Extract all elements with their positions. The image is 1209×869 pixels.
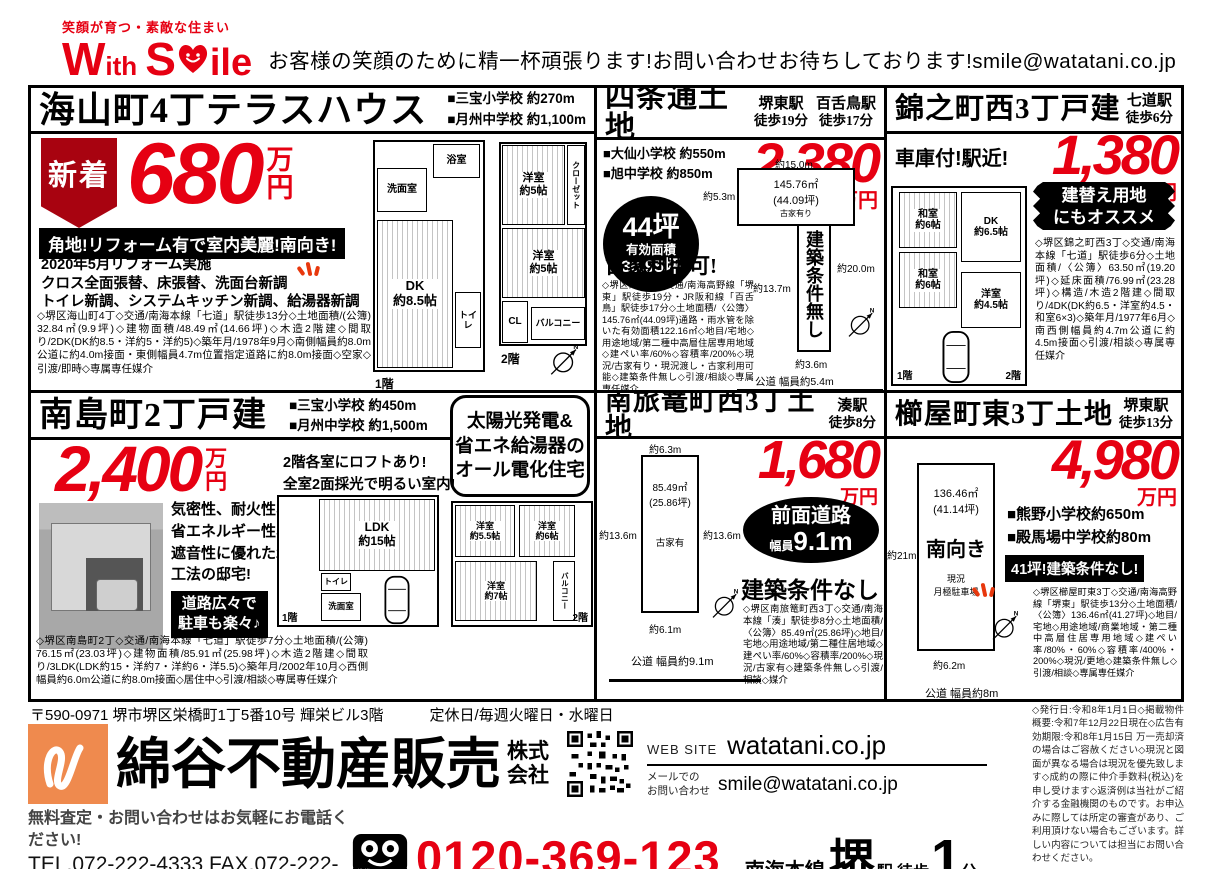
listing-title-row: 錦之町西3丁戸建 七道駅徒歩6分 (887, 88, 1181, 134)
station: 堺東駅徒歩19分 (754, 95, 808, 129)
room-label: トイレ (455, 292, 481, 348)
room-label: 洋室 約4.5帖 (961, 272, 1021, 328)
svg-text:N: N (870, 307, 875, 314)
property-details: ◇堺区南島町2丁◇交通/南海本線「七道」駅徒歩7分◇土地面積/(公簿) 76.1… (36, 635, 368, 687)
walk-minutes: 1 (931, 828, 961, 869)
catch-copy: 車庫付!駅近! (895, 142, 1008, 171)
room-label: CL (502, 301, 528, 343)
listing-title: 南島町2丁戸建 (39, 399, 267, 433)
emphasis-marks-icon (299, 262, 319, 276)
floorplan: 和室 約6帖 DK 約6.5帖 和室 約6帖 洋室 約4.5帖 1階 2階 (891, 186, 1027, 386)
room-label: 洋室 約7帖 (455, 561, 537, 621)
heart-smile-icon (176, 43, 210, 75)
listing-minamihatago: 南旅篭町西3丁土地 湊駅徒歩8分 約6.3m 85.49㎡ (25.86坪) 古… (597, 393, 887, 699)
listing-body: 2,400 万 円 2階各室にロフトあり! 全室2面採光で明るい室内! 気密性、… (31, 439, 594, 699)
svg-text:N: N (573, 344, 578, 351)
compass-icon: N (989, 609, 1021, 641)
email-row: メールでの お問い合わせ smile@watatani.co.jp (647, 771, 987, 797)
room-label: 洗面室 (321, 593, 361, 621)
price-number: 1,680 (758, 439, 878, 486)
station: 湊駅徒歩8分 (829, 397, 876, 431)
school-line: ■旭中学校 約850m (603, 164, 726, 184)
school-line: ■三宝小学校 約450m (289, 396, 428, 416)
badge-line: 前面道路 (743, 505, 879, 527)
land-plot: 145.76㎡ (44.09坪) 古家有り (737, 168, 855, 226)
land-note: 古家有 (643, 535, 697, 549)
room-label: DK 約8.5帖 (377, 220, 453, 368)
suffix-line: 会社 (507, 764, 549, 788)
holiday-note: 定休日/毎週火曜日・水曜日 (429, 704, 613, 725)
company-logo: 笑顔が育つ・素敵な住まい WithSile (28, 17, 252, 82)
land-plot: 85.49㎡ (25.86坪) 古家有 (641, 455, 699, 613)
price-number: 2,400 (55, 439, 200, 500)
legal-fine-print: ◇発行日:令和8年1月1日◇掲載物件概要:令和7年12月22日現在◇広告有効期限… (1032, 704, 1184, 864)
listing-title: 四条通土地 (605, 88, 754, 143)
listing-title-row: 四条通土地 堺東駅徒歩19分 百舌鳥駅徒歩17分 (597, 88, 884, 140)
unit-en: 円 (267, 174, 294, 202)
dimension-label: 約21m (887, 547, 916, 562)
qr-code (567, 731, 633, 797)
website-label: WEB SITE (647, 742, 717, 757)
listing-body: 新着 680 万 円 角地!リフォーム有で室内美麗!南向き! 2020年5月リフ… (31, 134, 594, 390)
floor-label: 1階 (375, 375, 394, 390)
price-unit: 万 円 (205, 447, 227, 493)
svg-text:N: N (1014, 610, 1019, 617)
web-contact-block: WEB SITE watatani.co.jp メールでの お問い合わせ smi… (647, 730, 987, 797)
land-area: 136.46㎡ (41.14坪) (919, 485, 993, 517)
school-line: ■殿馬場中学校約80m (1007, 526, 1151, 549)
car-icon (941, 330, 971, 384)
compass-icon: N (845, 306, 877, 338)
badge-line: 44坪 (603, 212, 699, 243)
dimension-label: 約20.0m (837, 260, 875, 275)
property-details: ◇堺区海山町4丁◇交通/南海本線「七道」駅徒歩13分◇土地面積/(公簿) 32.… (37, 310, 371, 376)
floorplan-2f: 洋室 約5.5帖 洋室 約6帖 洋室 約7帖 バルコニー 2階 (451, 501, 593, 627)
listing-body: 約6.3m 85.49㎡ (25.86坪) 古家有 約13.6m 約13.6m … (597, 439, 884, 699)
logo-text-ith: ith (105, 53, 137, 79)
company-suffix: 株式 会社 (507, 740, 549, 788)
new-arrival-ribbon: 新着 (41, 138, 117, 228)
company-mark-icon (28, 724, 108, 804)
room-label: トイレ (321, 573, 351, 591)
logo-text-w: W (62, 36, 105, 82)
room-label: 洋室 約5帖 (502, 228, 585, 298)
reform-line: トイレ新調、システムキッチン新調、給湯器新調 (41, 293, 360, 312)
walk-unit: 分 (961, 858, 977, 869)
footer: 〒590-0971 堺市堺区栄橋町1丁5番10号 輝栄ビル3階 定休日/毎週火曜… (28, 704, 1184, 866)
listing-kushiya: 櫛屋町東3丁土地 堺東駅徒歩13分 136.46㎡ (41.14坪) 南向き 現… (887, 393, 1181, 699)
listing-nishikinocho: 錦之町西3丁戸建 七道駅徒歩6分 車庫付!駅近! 1,380 万円 和室 約6帖… (887, 88, 1181, 393)
school-distances: ■大仙小学校 約550m ■旭中学校 約850m (603, 144, 726, 183)
website-row: WEB SITE watatani.co.jp (647, 730, 987, 766)
dimension-label: 約13.7m (753, 280, 791, 295)
dimension-label: 約13.6m (599, 527, 637, 542)
room-label: 洋室 約5.5帖 (455, 505, 515, 557)
station: 堺東駅徒歩13分 (1119, 397, 1173, 431)
company-row: 綿谷不動産販売 株式 会社 (28, 724, 987, 804)
compass-icon: N (547, 342, 581, 376)
header-message: お客様の笑顔のために精一杯頑張ります!お問い合わせお待ちしております!smile… (268, 44, 1176, 82)
property-photo (39, 503, 163, 649)
listing-title: 南旅篭町西3丁土地 (605, 393, 829, 442)
listing-title-row: 櫛屋町東3丁土地 堺東駅徒歩13分 (887, 393, 1181, 439)
email-address: smile@watatani.co.jp (718, 774, 898, 796)
email-label: メールでの お問い合わせ (647, 771, 710, 797)
tsubo-banner: 41坪!建築条件なし! (1005, 555, 1144, 582)
land-area: 145.76㎡ (44.09坪) (739, 176, 853, 208)
parking-badge: 道路広々で 駐車も楽々♪ (171, 591, 268, 638)
company-name: 綿谷不動産販売 (116, 737, 501, 792)
phone-block: 無料査定・お問い合わせはお気軽にお電話ください! TEL.072-222-433… (28, 808, 352, 869)
station: 七道駅徒歩6分 (1126, 92, 1173, 126)
reform-line: クロス全面張替、床張替、洗面台新調 (41, 275, 360, 294)
room-label: 和室 約6帖 (899, 192, 957, 248)
room-label: DK 約6.5帖 (961, 192, 1021, 262)
room-label: 洗面室 (377, 168, 427, 212)
dimension-label: 約6.1m (649, 621, 681, 636)
floorplan-1f: 洗面室 浴室 DK 約8.5帖 トイレ (373, 140, 485, 372)
contact-row: 無料査定・お問い合わせはお気軽にお電話ください! TEL.072-222-433… (28, 808, 977, 869)
call-note: 無料査定・お問い合わせはお気軽にお電話ください! (28, 808, 352, 851)
school-line: ■大仙小学校 約550m (603, 144, 726, 164)
price-unit: 万 円 (267, 146, 294, 203)
floor-label: 1階 (897, 367, 913, 382)
room-label: 和室 約6帖 (899, 252, 957, 308)
suffix-line: 株式 (507, 740, 549, 764)
floor-label: 2階 (572, 609, 588, 624)
road-line (737, 389, 883, 390)
catch-banner: 角地!リフォーム有で室内美麗!南向き! (39, 228, 345, 259)
price: 2,400 万 円 (55, 439, 227, 500)
dimension-label: 約3.6m (795, 356, 827, 371)
price-number: 1,380 (1052, 134, 1177, 181)
flyer-page: 笑顔が育つ・素敵な住まい WithSile お客様の笑顔のために精一杯頑張ります… (0, 0, 1209, 869)
floorplan-2f: 洋室 約5帖 クローゼット 洋室 約5帖 CL バルコニー (499, 142, 587, 346)
loft-note: 2階各室にロフトあり! 全室2面採光で明るい室内! (283, 453, 455, 497)
station-access: 堺東駅徒歩19分 百舌鳥駅徒歩17分 (754, 95, 876, 129)
unit-en: 円 (205, 470, 227, 493)
dimension-label: 約13.6m (703, 527, 741, 542)
no-building-conditions-vertical: 建築条件無し (801, 230, 827, 350)
emphasis-marks-icon (947, 583, 1021, 597)
school-distances: ■三宝小学校 約270m ■月州中学校 約1,100m (447, 89, 586, 130)
badge-small: 幅員 (769, 539, 793, 553)
compass-icon: N (709, 587, 741, 619)
logo-text-ile: ile (210, 44, 252, 82)
car-icon (383, 575, 411, 625)
postal-address: 〒590-0971 堺市堺区栄橋町1丁5番10号 輝栄ビル3階 (30, 704, 383, 725)
freedial-number: 0120-369-123 (416, 830, 721, 869)
rail-line: 南海本線 (745, 854, 825, 869)
floor-label: 1階 (282, 609, 298, 624)
svg-text:N: N (734, 588, 739, 595)
listing-title-row: 海山町4丁テラスハウス ■三宝小学校 約270m ■月州中学校 約1,100m (31, 88, 594, 134)
station: 百舌鳥駅徒歩17分 (816, 95, 876, 129)
dimension-label: 約5.3m (703, 188, 735, 203)
listing-minamijima: 南島町2丁戸建 ■三宝小学校 約450m ■月州中学校 約1,500m 太陽光発… (31, 393, 597, 699)
address-line: 〒590-0971 堺市堺区栄橋町1丁5番10号 輝栄ビル3階 定休日/毎週火曜… (30, 704, 614, 725)
room-label: クローゼット (567, 145, 585, 225)
dimension-label: 約6.3m (649, 441, 681, 456)
badge-big: 9.1m (793, 526, 852, 556)
listing-body: 136.46㎡ (41.14坪) 南向き 現況 月極駐車場 約21m 約6.2m… (887, 439, 1181, 699)
school-line: ■月州中学校 約1,100m (447, 110, 586, 130)
floorplan-1f: LDK 約15帖 洗面室 トイレ 1階 (277, 495, 439, 627)
listing-body: ■大仙小学校 約550m ■旭中学校 約850m 2,380 万円 44坪 有効… (597, 140, 884, 390)
listing-title: 櫛屋町東3丁土地 (895, 401, 1113, 429)
rebuild-badge: 建替え用地 にもオススメ (1033, 182, 1175, 230)
logo-text-s: S (145, 36, 176, 82)
listing-shijodori: 四条通土地 堺東駅徒歩19分 百舌鳥駅徒歩17分 ■大仙小学校 約550m ■旭… (597, 88, 887, 393)
land-plot-strip: 建築条件無し (797, 224, 831, 352)
price-number: 680 (127, 134, 262, 216)
room-label: 浴室 (433, 144, 480, 178)
dimension-label: 約6.2m (933, 657, 965, 672)
road-line (609, 679, 761, 682)
front-road-badge: 前面道路 幅員9.1m (743, 497, 879, 563)
property-details: ◇堺区南旅篭町西3丁◇交通/南海本線「湊」駅徒歩8分◇土地面積/〈公簿〉85.4… (743, 603, 883, 685)
facing-label: 南向き (919, 533, 993, 562)
property-details: ◇堺区錦之町西3丁◇交通/南海本線「七道」駅徒歩6分◇土地面積/〈公簿〉63.5… (1035, 238, 1175, 363)
room-label: バルコニー (531, 307, 585, 340)
station-name: 堺 (829, 825, 875, 869)
price: 4,980 万円 (1052, 439, 1177, 508)
school-line: ■熊野小学校約650m (1007, 503, 1151, 526)
unit-man: 万 (205, 447, 227, 470)
land-area: 85.49㎡ (25.86坪) (643, 479, 697, 509)
photo-car-shape (96, 579, 138, 611)
school-distances: ■熊野小学校約650m ■殿馬場中学校約80m (1007, 503, 1151, 550)
old-house-note: 古家利用可! (605, 250, 717, 280)
school-line: ■三宝小学校 約270m (447, 89, 586, 109)
freedial-icon: 携帯・PHS OK (352, 834, 408, 869)
room-label: 洋室 約5帖 (502, 145, 565, 225)
price-number: 4,980 (1052, 439, 1177, 486)
property-details: ◇堺区櫛屋町東3丁◇交通/南海高野線「堺東」駅徒歩13分◇土地面積/〈公簿〉13… (1033, 587, 1177, 679)
school-distances: ■三宝小学校 約450m ■月州中学校 約1,500m (289, 396, 428, 437)
tel-fax: TEL.072-222-4333 FAX.072-222-4334 (28, 851, 352, 869)
price: 680 万 円 (127, 134, 294, 216)
station-access-footer: 南海本線 堺 駅 徒歩 1 分 (745, 825, 978, 869)
road-label: 公道 幅員約5.4m (755, 374, 834, 389)
land-note: 古家有り (739, 208, 853, 219)
road-label: 公道 幅員約9.1m (631, 653, 714, 669)
listing-umiyama: 海山町4丁テラスハウス ■三宝小学校 約270m ■月州中学校 約1,100m … (31, 88, 597, 393)
listing-title: 錦之町西3丁戸建 (895, 95, 1121, 124)
road-label: 公道 幅員約8m (925, 685, 998, 699)
floor-label: 2階 (501, 350, 520, 367)
listing-title: 海山町4丁テラスハウス (39, 92, 427, 128)
listing-title-row: 南旅篭町西3丁土地 湊駅徒歩8分 (597, 393, 884, 439)
unit-man: 万 (267, 146, 294, 174)
listing-body: 車庫付!駅近! 1,380 万円 和室 約6帖 DK 約6.5帖 和室 約6帖 … (887, 134, 1181, 390)
room-label: 洋室 約6帖 (519, 505, 575, 557)
school-line: ■月州中学校 約1,500m (289, 416, 428, 436)
with-smile-logo: WithSile (62, 36, 252, 82)
station-mid: 駅 徒歩 (877, 858, 929, 869)
room-label: LDK 約15帖 (319, 499, 435, 571)
floor-label: 2階 (1005, 367, 1021, 382)
listings-grid: 海山町4丁テラスハウス ■三宝小学校 約270m ■月州中学校 約1,100m … (28, 85, 1184, 702)
no-building-conditions-heading: 建築条件なし (741, 571, 879, 605)
website-url: watatani.co.jp (727, 730, 886, 761)
header: 笑顔が育つ・素敵な住まい WithSile お客様の笑顔のために精一杯頑張ります… (28, 6, 1184, 82)
land-plot: 136.46㎡ (41.14坪) 南向き 現況 月極駐車場 (917, 463, 995, 651)
property-details: ◇堺区四条通◇交通/南海高野線「堺東」駅徒歩19分・JR阪和線「百舌鳥」駅徒歩1… (602, 280, 754, 390)
